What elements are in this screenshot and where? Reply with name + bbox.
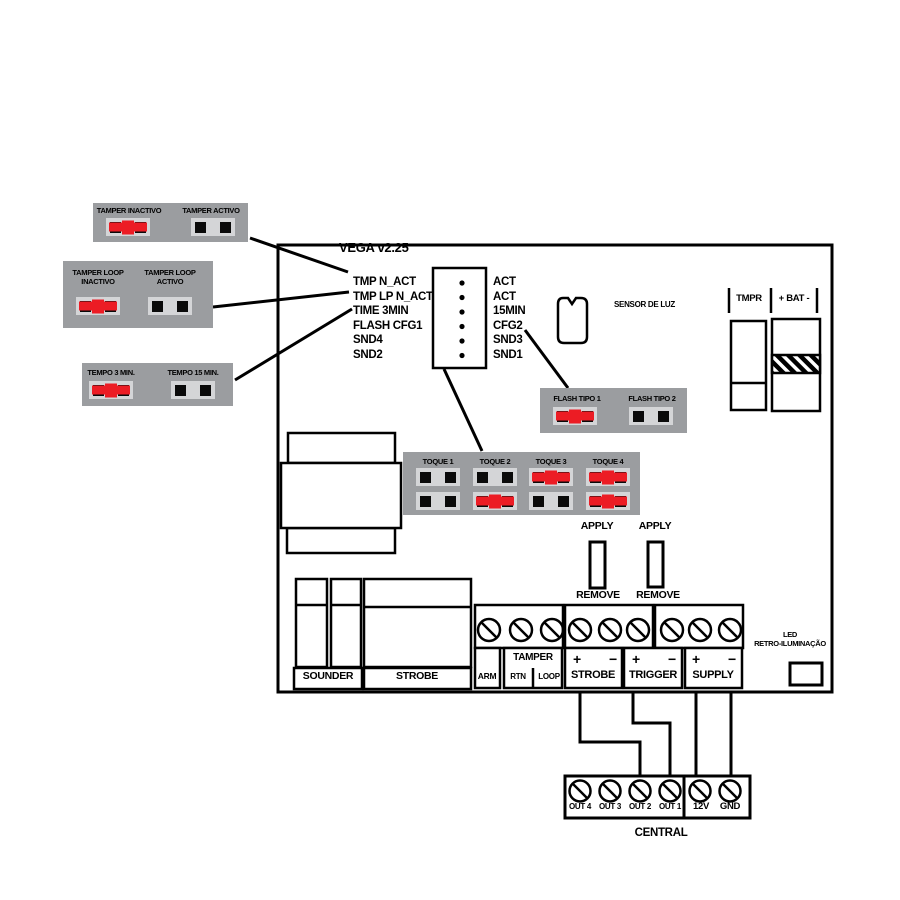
terminal-loop-label: LOOP <box>538 673 559 681</box>
callout-line-toque <box>444 369 482 451</box>
jumper-toque2-bottom <box>473 492 517 510</box>
backlight-led-label: LED RETRO-ILUMINAÇÃO <box>754 630 826 648</box>
jumper-pin <box>177 301 188 312</box>
config-box-toque: TOQUE 1 TOQUE 2 TOQUE 3 TOQUE 4 <box>403 452 640 515</box>
light-sensor-icon <box>558 298 587 343</box>
jumper-flash-tipo1 <box>553 407 597 425</box>
sounder-element <box>296 579 327 667</box>
jumper-cap <box>532 473 570 482</box>
apply-label: APPLY <box>639 521 672 532</box>
battery-hatch-band <box>772 355 820 373</box>
terminal-rtn-label: RTN <box>510 673 526 681</box>
option-label: FLASH TIPO 2 <box>628 395 675 403</box>
terminal-supply-label: SUPPLY <box>692 670 733 681</box>
pin-label-right: SND1 <box>493 350 522 362</box>
jumper-toque3-bottom <box>529 492 573 510</box>
jumper-tamper-activo <box>191 218 235 236</box>
option-label: TAMPER LOOP ACTIVO <box>144 268 195 286</box>
jumper-pin <box>220 222 231 233</box>
option-label: TAMPER ACTIVO <box>182 207 239 215</box>
pin-label-right: 15MIN <box>493 306 525 318</box>
central-terminal-label: OUT 2 <box>629 803 651 811</box>
remove-label: REMOVE <box>576 590 620 601</box>
tmpr-label: TMPR <box>736 294 762 304</box>
terminal-trigger-label: TRIGGER <box>629 670 677 681</box>
sounder-label: SOUNDER <box>303 671 353 682</box>
transformer-top <box>288 433 395 463</box>
backlight-led <box>790 663 822 685</box>
central-terminal-label: 12V <box>693 802 709 812</box>
jumper-cap <box>79 302 117 311</box>
central-terminal-label: GND <box>720 802 740 812</box>
central-terminal-label: OUT 3 <box>599 803 621 811</box>
jumper-cap <box>109 223 147 232</box>
jumper-cap <box>92 386 130 395</box>
plus-sign: + <box>573 652 581 666</box>
pin-label-left: SND2 <box>353 350 382 362</box>
jumper-pin <box>152 301 163 312</box>
arm-label-box <box>475 648 500 688</box>
pin-label-right: ACT <box>493 292 516 304</box>
config-box-tempo: TEMPO 3 MIN. TEMPO 15 MIN. <box>82 363 233 406</box>
terminal-tamper-label: TAMPER <box>513 653 553 663</box>
pin-label-right: SND3 <box>493 335 522 347</box>
option-label: TEMPO 15 MIN. <box>167 369 218 377</box>
jumper-pin <box>195 222 206 233</box>
apply-remove-jumper-strobe <box>590 542 605 588</box>
jumper-pin <box>420 472 431 483</box>
transformer-body <box>281 463 401 528</box>
jumper-cap <box>589 473 627 482</box>
pin-label-left: TIME 3MIN <box>353 306 408 318</box>
strobe-device-label: STROBE <box>396 671 438 682</box>
jumper-pin <box>558 496 569 507</box>
board-title: VEGA v2.25 <box>339 241 409 254</box>
jumper-pin <box>175 385 186 396</box>
option-label: TOQUE 3 <box>536 458 567 466</box>
jumper-toque4-bottom <box>586 492 630 510</box>
jumper-toque4-top <box>586 468 630 486</box>
apply-label: APPLY <box>581 521 614 532</box>
central-terminal-label: OUT 4 <box>569 803 591 811</box>
plus-sign: + <box>692 652 700 666</box>
apply-remove-jumper-trigger <box>648 542 663 587</box>
callout-line-tamper <box>250 238 348 272</box>
jumper-pin <box>420 496 431 507</box>
jumper-pin <box>445 472 456 483</box>
terminal-arm-label: ARM <box>478 672 496 681</box>
tamper-switch <box>731 321 766 410</box>
jumper-pin <box>477 472 488 483</box>
strobe-element <box>364 579 471 667</box>
pin-label-right: ACT <box>493 277 516 289</box>
option-label: TOQUE 4 <box>593 458 624 466</box>
pin-label-left: TMP N_ACT <box>353 277 416 289</box>
config-box-tamper-loop: TAMPER LOOP INACTIVO TAMPER LOOP ACTIVO <box>63 261 213 328</box>
config-box-tamper: TAMPER INACTIVO TAMPER ACTIVO <box>93 203 248 242</box>
minus-sign: − <box>668 652 676 666</box>
jumper-pin <box>502 472 513 483</box>
jumper-tamper-loop-inactivo <box>76 297 120 315</box>
jumper-tamper-loop-activo <box>148 297 192 315</box>
remove-label: REMOVE <box>636 590 680 601</box>
config-box-flash: FLASH TIPO 1 FLASH TIPO 2 <box>540 388 687 433</box>
wire-strobe-out2 <box>580 692 640 776</box>
central-title: CENTRAL <box>635 828 688 840</box>
bat-label: + BAT - <box>779 294 810 304</box>
light-sensor-label: SENSOR DE LUZ <box>614 301 675 309</box>
jumper-tempo-3min <box>89 381 133 399</box>
pin-label-left: SND4 <box>353 335 382 347</box>
jumper-pin <box>658 411 669 422</box>
terminal-strobe-label: STROBE <box>571 670 615 681</box>
jumper-cap <box>556 412 594 421</box>
sounder-element <box>331 579 361 667</box>
jumper-tamper-inactivo <box>106 218 150 236</box>
jumper-pin <box>533 496 544 507</box>
jumper-toque3-top <box>529 468 573 486</box>
minus-sign: − <box>728 652 736 666</box>
jumper-toque1-bottom <box>416 492 460 510</box>
option-label: TAMPER LOOP INACTIVO <box>72 268 123 286</box>
jumper-flash-tipo2 <box>629 407 673 425</box>
jumper-cap <box>476 497 514 506</box>
pin-label-left: FLASH CFG1 <box>353 321 422 333</box>
jumper-cap <box>589 497 627 506</box>
option-label: TAMPER INACTIVO <box>97 207 162 215</box>
jumper-pin <box>633 411 644 422</box>
pin-label-right: CFG2 <box>493 321 522 333</box>
pin-label-left: TMP LP N_ACT <box>353 292 433 304</box>
option-label: FLASH TIPO 1 <box>553 395 600 403</box>
plus-sign: + <box>632 652 640 666</box>
option-label: TEMPO 3 MIN. <box>87 369 134 377</box>
option-label: TOQUE 1 <box>423 458 454 466</box>
jumper-wiring-diagram: TAMPER INACTIVO TAMPER ACTIVO TAMPER LOO… <box>0 0 900 900</box>
transformer-bottom <box>287 528 395 553</box>
diagram-art <box>0 0 900 900</box>
jumper-toque1-top <box>416 468 460 486</box>
minus-sign: − <box>609 652 617 666</box>
callout-line-tamper-loop <box>213 292 349 307</box>
jumper-pin <box>200 385 211 396</box>
jumper-tempo-15min <box>171 381 215 399</box>
jumper-toque2-top <box>473 468 517 486</box>
central-terminal-label: OUT 1 <box>659 803 681 811</box>
callout-line-tempo <box>235 309 352 380</box>
jumper-pin <box>445 496 456 507</box>
option-label: TOQUE 2 <box>480 458 511 466</box>
